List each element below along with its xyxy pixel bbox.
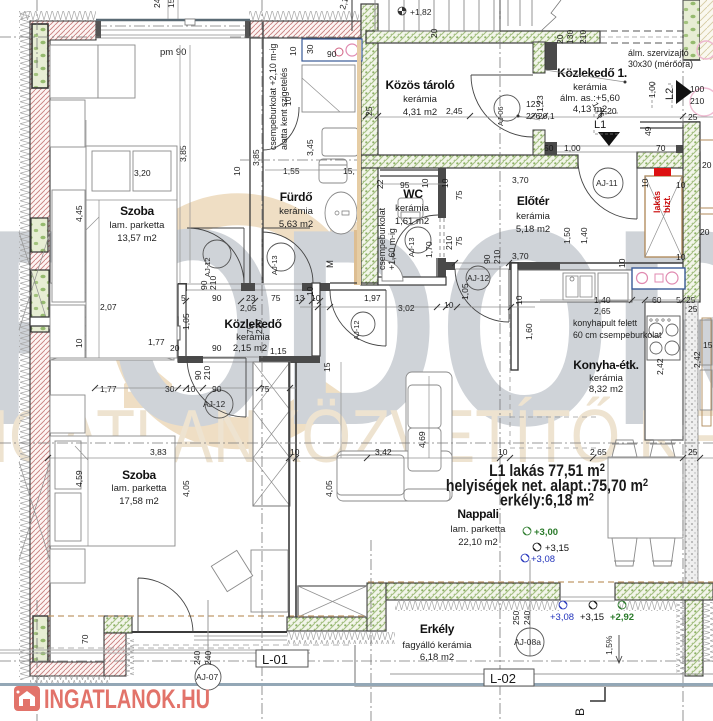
svg-text:1,70: 1,70	[424, 241, 434, 258]
svg-text:konyhapult felett: konyhapult felett	[573, 318, 638, 328]
svg-text:bizt.: bizt.	[662, 195, 672, 213]
svg-text:2,45: 2,45	[446, 106, 463, 116]
svg-text:10: 10	[283, 96, 293, 106]
svg-text:2,65: 2,65	[590, 447, 607, 457]
svg-text:25: 25	[688, 112, 698, 122]
svg-text:10: 10	[288, 46, 298, 56]
svg-text:Közös tároló: Közös tároló	[385, 78, 454, 92]
svg-text:210: 210	[208, 276, 218, 290]
svg-text:4,69: 4,69	[417, 431, 427, 448]
svg-text:90: 90	[212, 384, 222, 394]
svg-text:10: 10	[617, 258, 627, 268]
svg-text:75: 75	[454, 236, 464, 246]
svg-text:AJ-13: AJ-13	[407, 237, 416, 257]
svg-text:60 cm csempeburkolat: 60 cm csempeburkolat	[573, 330, 662, 340]
svg-text:4,31 m2: 4,31 m2	[403, 107, 437, 118]
svg-text:10: 10	[514, 295, 524, 305]
svg-text:15,: 15,	[343, 166, 355, 176]
svg-text:4,45: 4,45	[74, 205, 84, 222]
svg-text:4,05: 4,05	[324, 480, 334, 497]
svg-text:20: 20	[700, 227, 710, 237]
svg-text:Erkély: Erkély	[420, 622, 455, 636]
svg-text:5,63 m2: 5,63 m2	[279, 219, 313, 230]
svg-text:10: 10	[640, 178, 650, 188]
svg-text:AJ-06: AJ-06	[496, 106, 505, 126]
svg-text:95: 95	[400, 180, 410, 190]
svg-text:csempeburkolat +2,10 m-ig: csempeburkolat +2,10 m-ig	[268, 44, 278, 150]
svg-text:1,23: 1,23	[535, 95, 545, 112]
svg-text:30x30 (mérőóra): 30x30 (mérőóra)	[628, 59, 693, 69]
svg-text:3,42: 3,42	[375, 447, 392, 457]
svg-text:3,02: 3,02	[398, 303, 415, 313]
svg-text:250: 250	[511, 611, 521, 625]
svg-text:75: 75	[271, 293, 281, 303]
svg-text:Előtér: Előtér	[517, 194, 550, 208]
svg-text:INGATLANOK.HU: INGATLANOK.HU	[44, 684, 210, 715]
svg-text:1,50: 1,50	[562, 227, 572, 244]
svg-text:70: 70	[656, 143, 666, 153]
svg-text:Nappali: Nappali	[457, 507, 498, 521]
svg-text:4,59: 4,59	[74, 470, 84, 487]
svg-text:3,70: 3,70	[512, 175, 529, 185]
svg-text:20: 20	[170, 343, 180, 353]
svg-text:kerámia: kerámia	[395, 203, 430, 214]
svg-text:210: 210	[202, 366, 212, 380]
svg-text:lam. parketta: lam. parketta	[112, 483, 168, 494]
svg-text:2,42: 2,42	[655, 358, 665, 375]
svg-text:L-02: L-02	[490, 671, 516, 686]
svg-text:240: 240	[203, 651, 213, 665]
svg-text:15: 15	[322, 362, 332, 372]
svg-text:5,18 m2: 5,18 m2	[516, 224, 550, 235]
svg-text:100: 100	[690, 84, 704, 94]
svg-text:1,05: 1,05	[460, 283, 470, 300]
svg-text:210: 210	[578, 30, 588, 44]
svg-text:2,07: 2,07	[100, 302, 117, 312]
svg-text:210: 210	[444, 236, 454, 250]
svg-text:10: 10	[305, 286, 315, 296]
svg-text:1,77: 1,77	[100, 384, 117, 394]
svg-text:1,05: 1,05	[181, 313, 191, 330]
svg-text:+1,82: +1,82	[410, 7, 432, 17]
svg-text:2,42: 2,42	[692, 351, 702, 368]
svg-text:+3,15: +3,15	[580, 612, 604, 623]
svg-text:22,10 m2: 22,10 m2	[458, 537, 498, 548]
svg-text:30: 30	[165, 384, 175, 394]
svg-text:L1: L1	[594, 119, 606, 131]
svg-text:AJ-07: AJ-07	[196, 672, 218, 682]
svg-text:álm. as.:+5,60: álm. as.:+5,60	[560, 93, 620, 104]
svg-text:1,61 m2: 1,61 m2	[395, 216, 429, 227]
svg-text:25: 25	[688, 447, 698, 457]
svg-text:fagyálló kerámia: fagyálló kerámia	[402, 640, 472, 651]
svg-text:AJ-12: AJ-12	[352, 320, 361, 340]
svg-text:210: 210	[492, 250, 502, 264]
svg-text:3,83: 3,83	[150, 447, 167, 457]
svg-text:AJ-12: AJ-12	[467, 273, 489, 283]
svg-text:90: 90	[327, 49, 337, 59]
svg-text:erkély:6,18 m2: erkély:6,18 m2	[500, 491, 594, 509]
svg-text:10: 10	[444, 300, 454, 310]
svg-text:10: 10	[676, 180, 686, 190]
svg-text:240: 240	[522, 611, 532, 625]
svg-text:10: 10	[676, 252, 686, 262]
svg-text:210: 210	[254, 320, 264, 334]
svg-text:+3,08: +3,08	[550, 612, 574, 623]
svg-text:M: M	[325, 260, 336, 268]
svg-text:+3,08: +3,08	[531, 554, 555, 565]
svg-text:+3,15: +3,15	[545, 543, 569, 554]
svg-text:csempeburkolat: csempeburkolat	[377, 207, 387, 270]
svg-text:1,97: 1,97	[364, 293, 381, 303]
svg-text:130: 130	[565, 30, 575, 44]
svg-text:10: 10	[186, 384, 196, 394]
svg-text:20: 20	[429, 28, 439, 38]
svg-text:kerámia: kerámia	[573, 82, 608, 93]
svg-text:1,5%: 1,5%	[604, 635, 614, 655]
svg-text:1,15: 1,15	[270, 346, 287, 356]
svg-text:49: 49	[643, 126, 653, 136]
svg-text:6,18 m2: 6,18 m2	[420, 652, 454, 663]
svg-text:4,05: 4,05	[181, 480, 191, 497]
svg-text:2,15 m2: 2,15 m2	[233, 343, 267, 354]
svg-text:1,60: 1,60	[524, 323, 534, 340]
svg-text:kerámia: kerámia	[403, 94, 438, 105]
svg-text:1,00: 1,00	[647, 81, 657, 98]
svg-text:Szoba: Szoba	[120, 204, 154, 218]
svg-text:24: 24	[152, 0, 162, 8]
svg-text:lam. parketta: lam. parketta	[451, 524, 507, 535]
svg-text:10: 10	[74, 338, 84, 348]
svg-text:90: 90	[482, 254, 492, 264]
svg-text:3,70: 3,70	[512, 251, 529, 261]
svg-text:AJ-08a: AJ-08a	[514, 637, 541, 647]
svg-text:AJ-12: AJ-12	[203, 257, 212, 277]
svg-text:15,: 15,	[703, 340, 713, 350]
svg-text:+1,60 m-ig: +1,60 m-ig	[387, 228, 397, 270]
svg-text:1,55: 1,55	[283, 166, 300, 176]
svg-text:50: 50	[544, 143, 554, 153]
svg-text:3,45: 3,45	[305, 139, 315, 156]
svg-text:pm 90: pm 90	[160, 47, 186, 58]
svg-text:lam. parketta: lam. parketta	[110, 220, 166, 231]
svg-text:10: 10	[440, 178, 450, 188]
svg-text:álm. szervizajtó: álm. szervizajtó	[628, 48, 689, 58]
svg-text:kerámia: kerámia	[279, 206, 314, 217]
svg-text:10: 10	[420, 178, 430, 188]
svg-text:Szoba: Szoba	[122, 468, 156, 482]
svg-text:70: 70	[80, 634, 90, 644]
svg-text:3,20: 3,20	[134, 168, 151, 178]
svg-text:3,85: 3,85	[251, 149, 261, 166]
svg-text:240: 240	[192, 651, 202, 665]
svg-text:1,00: 1,00	[564, 143, 581, 153]
svg-text:15: 15	[166, 0, 176, 8]
svg-text:22: 22	[375, 179, 385, 189]
svg-text:10: 10	[232, 166, 242, 176]
svg-text:8,32 m2: 8,32 m2	[589, 384, 623, 395]
svg-text:20: 20	[555, 34, 565, 44]
svg-text:2,65: 2,65	[594, 306, 611, 316]
svg-text:3,85: 3,85	[178, 145, 188, 162]
svg-text:AJ-13: AJ-13	[270, 255, 279, 275]
svg-text:AJ-12: AJ-12	[203, 399, 225, 409]
svg-text:AJ-11: AJ-11	[596, 178, 618, 188]
svg-text:Konyha-étk.: Konyha-étk.	[573, 358, 638, 372]
svg-text:20: 20	[702, 160, 712, 170]
svg-text:25: 25	[688, 304, 698, 314]
svg-text:lakás: lakás	[652, 191, 662, 213]
svg-text:kerámia: kerámia	[516, 211, 551, 222]
svg-text:2,05: 2,05	[240, 303, 257, 313]
svg-text:B: B	[573, 708, 587, 716]
svg-text:75: 75	[454, 190, 464, 200]
svg-text:1,77: 1,77	[148, 337, 165, 347]
svg-text:+2,92: +2,92	[610, 612, 634, 623]
svg-text:30: 30	[305, 44, 315, 54]
svg-text:90: 90	[212, 343, 222, 353]
svg-text:13: 13	[295, 293, 305, 303]
svg-text:90: 90	[212, 293, 222, 303]
svg-text:+3,00: +3,00	[534, 527, 558, 538]
svg-text:L2: L2	[664, 88, 676, 100]
svg-text:Fürdő: Fürdő	[280, 190, 313, 204]
svg-text:25: 25	[364, 106, 374, 116]
svg-text:Közlekedő 1.: Közlekedő 1.	[557, 66, 627, 80]
svg-text:alatta kent szigetelés: alatta kent szigetelés	[279, 67, 289, 150]
svg-text:210: 210	[690, 96, 704, 106]
svg-text:kerámia: kerámia	[589, 373, 624, 384]
svg-text:L-01: L-01	[262, 652, 288, 667]
svg-text:13,57 m2: 13,57 m2	[117, 233, 157, 244]
svg-text:1,40: 1,40	[579, 227, 589, 244]
svg-text:17,58 m2: 17,58 m2	[119, 496, 159, 507]
